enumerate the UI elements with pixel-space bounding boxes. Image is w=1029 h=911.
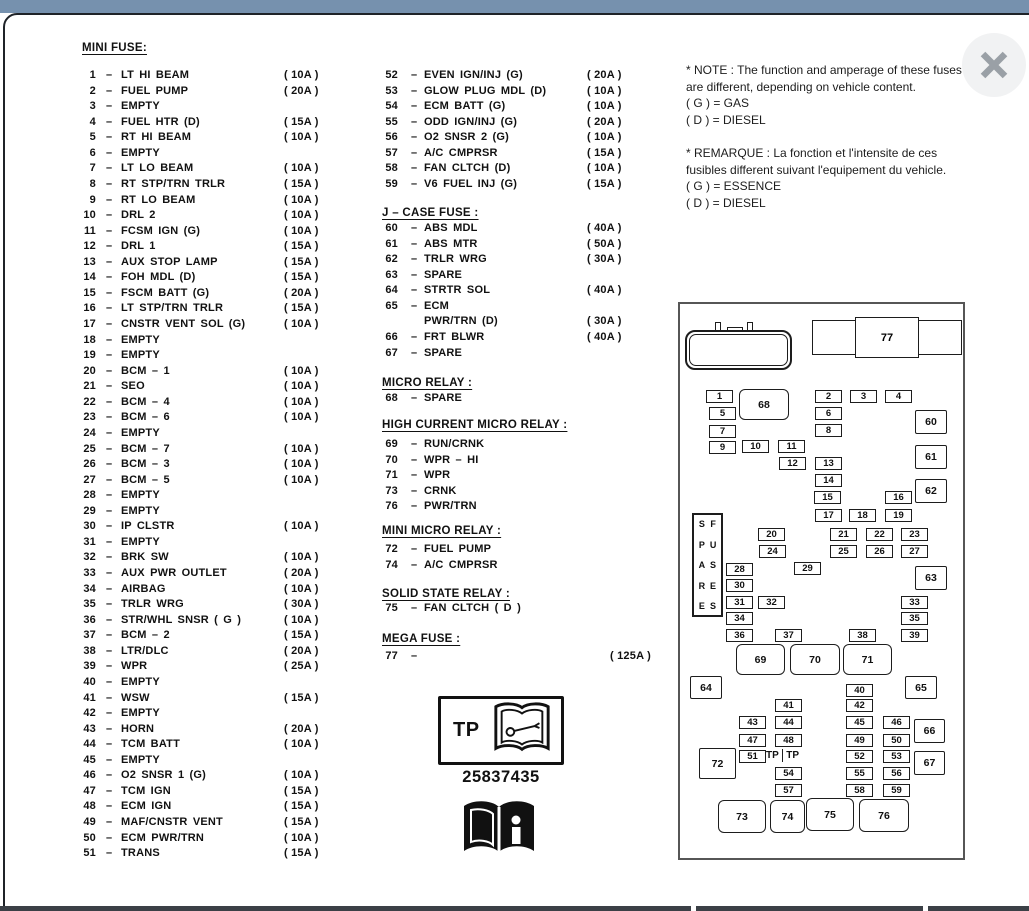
fuse-dash: – — [106, 598, 112, 610]
fuse-label: EMPTY — [121, 505, 160, 517]
fuse-number: 2 — [80, 85, 96, 97]
fuse-dash: – — [106, 85, 112, 97]
fuse-number: 64 — [382, 284, 398, 296]
fuse-row: 28 – EMPTY — [80, 489, 365, 505]
fuse-amp: ( 15A ) — [587, 178, 622, 190]
fuse-amp: ( 125A ) — [610, 650, 651, 662]
fuse-slot-22: 22 — [866, 528, 893, 541]
fuse-dash: – — [106, 583, 112, 595]
fuse-slot-53: 53 — [883, 750, 910, 763]
fuse-slot-48: 48 — [775, 734, 802, 747]
fuse-label: V6 FUEL INJ (G) — [424, 178, 517, 190]
fuse-amp: ( 10A ) — [284, 225, 319, 237]
fuse-label: DRL 1 — [121, 240, 156, 252]
fuse-label: GLOW PLUG MDL (D) — [424, 85, 546, 97]
fuse-slot-44: 44 — [775, 716, 802, 729]
fuse-number: 40 — [80, 676, 96, 688]
fuse-amp: ( 10A ) — [587, 131, 622, 143]
fuse-row: 54 – ECM BATT (G) ( 10A ) — [382, 100, 667, 116]
fuse-slot-45: 45 — [846, 716, 873, 729]
fuse-amp: ( 30A ) — [284, 598, 319, 610]
fuse-amp: ( 15A ) — [587, 147, 622, 159]
fuse-row: 9 – RT LO BEAM ( 10A ) — [80, 194, 365, 210]
fuse-number: 28 — [80, 489, 96, 501]
fuse-number: 55 — [382, 116, 398, 128]
fuse-dash: – — [106, 162, 112, 174]
fuse-dash: – — [411, 100, 417, 112]
fuse-number: 62 — [382, 253, 398, 265]
close-button[interactable] — [962, 33, 1026, 97]
fuse-slot-36: 36 — [726, 629, 753, 642]
fuse-label: RUN/CRNK — [424, 438, 484, 450]
tp-badge: TP — [438, 696, 564, 765]
fuse-number: 32 — [80, 551, 96, 563]
fuse-number: 4 — [80, 116, 96, 128]
fuse-amp: ( 15A ) — [284, 240, 319, 252]
micro-relay-list: 68 – SPARE — [382, 392, 667, 408]
fuse-row: 11 – FCSM IGN (G) ( 10A ) — [80, 225, 365, 241]
fuse-row: 48 – ECM IGN ( 15A ) — [80, 800, 365, 816]
fuse-label: ECM PWR/TRN — [121, 832, 204, 844]
fuse-slot-70: 70 — [790, 644, 840, 675]
mini-fuse-heading: MINI FUSE: — [82, 41, 147, 55]
fuse-dash: – — [411, 543, 417, 555]
fuse-dash: – — [106, 147, 112, 159]
fuse-row: 52 – EVEN IGN/INJ (G) ( 20A ) — [382, 69, 667, 85]
fuse-dash: – — [106, 194, 112, 206]
fuse-amp: ( 15A ) — [284, 178, 319, 190]
fuse-label: AUX PWR OUTLET — [121, 567, 227, 579]
fuse-number: 52 — [382, 69, 398, 81]
fuse-slot-13: 13 — [815, 457, 842, 470]
fuse-number: 74 — [382, 559, 398, 571]
owner-manual-icon — [459, 797, 539, 862]
fuse-number: 14 — [80, 271, 96, 283]
fuse-number: 9 — [80, 194, 96, 206]
fuse-number: 19 — [80, 349, 96, 361]
fuse-label: BCM – 7 — [121, 443, 170, 455]
fuse-dash: – — [106, 240, 112, 252]
fuse-dash: – — [411, 162, 417, 174]
fuse-amp: ( 10A ) — [284, 614, 319, 626]
fuse-dash: – — [106, 318, 112, 330]
fuse-dash: – — [411, 131, 417, 143]
fuse-row: 71 – WPR — [382, 469, 667, 485]
fuse-dash: – — [106, 785, 112, 797]
fuse-label: TRANS — [121, 847, 160, 859]
fuse-number: 3 — [80, 100, 96, 112]
fuse-number: 23 — [80, 411, 96, 423]
fuse-amp: ( 25A ) — [284, 660, 319, 672]
fuse-slot-65: 65 — [905, 676, 937, 699]
fuse-label: FUEL HTR (D) — [121, 116, 200, 128]
fuse-dash: – — [106, 427, 112, 439]
fuse-number: 41 — [80, 692, 96, 704]
fuse-row: 76 – PWR/TRN — [382, 500, 667, 516]
fuse-row: 37 – BCM – 2 ( 15A ) — [80, 629, 365, 645]
fuse-slot-71: 71 — [843, 644, 892, 675]
fuse-slot-41: 41 — [775, 699, 802, 712]
fuse-number: 68 — [382, 392, 398, 404]
fuse-dash: – — [106, 209, 112, 221]
fuse-amp: ( 40A ) — [587, 284, 622, 296]
fuse-amp: ( 30A ) — [587, 315, 622, 327]
fuse-number: 34 — [80, 583, 96, 595]
fuse-dash: – — [106, 614, 112, 626]
fuse-dash: – — [106, 271, 112, 283]
fuse-row: 59 – V6 FUEL INJ (G) ( 15A ) — [382, 178, 667, 194]
fuse-number: 61 — [382, 238, 398, 250]
fuse-number: 66 — [382, 331, 398, 343]
fuse-row: 45 – EMPTY — [80, 754, 365, 770]
fuse-dash: – — [411, 602, 417, 614]
fuse-number: 10 — [80, 209, 96, 221]
fuse-amp: ( 10A ) — [284, 162, 319, 174]
fuse-row: 8 – RT STP/TRN TRLR ( 15A ) — [80, 178, 365, 194]
fuse-number: 54 — [382, 100, 398, 112]
fuse-dash: – — [106, 411, 112, 423]
micro-relay-heading: MICRO RELAY : — [382, 376, 472, 390]
fuse-slot-12: 12 — [779, 457, 806, 470]
fuse-row: 1 – LT HI BEAM ( 10A ) — [80, 69, 365, 85]
fuse-slot-46: 46 — [883, 716, 910, 729]
fuse-number: 45 — [80, 754, 96, 766]
fuse-amp: ( 15A ) — [284, 302, 319, 314]
mini-fuse-list-cont: 52 – EVEN IGN/INJ (G) ( 20A ) 53 – GLOW … — [382, 69, 667, 194]
fuse-dash: – — [411, 650, 417, 662]
fuse-dash: – — [106, 660, 112, 672]
fuse-dash: – — [106, 816, 112, 828]
fuse-row: 67 – SPARE — [382, 347, 667, 363]
fuse-amp: ( 10A ) — [284, 738, 319, 750]
fuse-slot-17: 17 — [815, 509, 842, 522]
high-current-heading: HIGH CURRENT MICRO RELAY : — [382, 418, 567, 432]
fuse-dash: – — [411, 253, 417, 265]
fuse-slot-8: 8 — [815, 424, 842, 437]
fuse-label: BRK SW — [121, 551, 169, 563]
fuse-slot-63: 63 — [915, 566, 947, 590]
solid-state-list: 75 – FAN CLTCH ( D ) — [382, 602, 667, 618]
fuse-dash: – — [106, 116, 112, 128]
fuse-number: 15 — [80, 287, 96, 299]
close-icon — [975, 46, 1013, 84]
fuse-slot-74: 74 — [770, 800, 805, 833]
fuse-row: 39 – WPR ( 25A ) — [80, 660, 365, 676]
fuse-box-diagram: 77 SPARE FUSES TP TP 1579101112234681314… — [678, 302, 965, 860]
fuse-slot-5: 5 — [709, 407, 736, 420]
fuse-label: SEO — [121, 380, 145, 392]
fuse-label: ECM IGN — [121, 800, 171, 812]
fuse-row: 72 – FUEL PUMP — [382, 543, 667, 559]
fuse-dash: – — [106, 567, 112, 579]
fuse-number: 33 — [80, 567, 96, 579]
fuse-row: 64 – STRTR SOL ( 40A ) — [382, 284, 667, 300]
fuse-row: 46 – O2 SNSR 1 (G) ( 10A ) — [80, 769, 365, 785]
fuse-label: LT HI BEAM — [121, 69, 189, 81]
fuse-row: 57 – A/C CMPRSR ( 15A ) — [382, 147, 667, 163]
fuse-number: 20 — [80, 365, 96, 377]
fuse-number: 76 — [382, 500, 398, 512]
fuse-row: 73 – CRNK — [382, 485, 667, 501]
fuse-dash: – — [106, 536, 112, 548]
fuse-row: 56 – O2 SNSR 2 (G) ( 10A ) — [382, 131, 667, 147]
fuse-label: LT STP/TRN TRLR — [121, 302, 223, 314]
fuse-row: 68 – SPARE — [382, 392, 667, 408]
fuse-slot-25: 25 — [830, 545, 857, 558]
fuse-slot-39: 39 — [901, 629, 928, 642]
fuse-label: WPR — [121, 660, 147, 672]
fuse-slot-56: 56 — [883, 767, 910, 780]
fuse-slot-58: 58 — [846, 784, 873, 797]
fuse-amp: ( 10A ) — [284, 380, 319, 392]
fuse-slot-32: 32 — [758, 596, 785, 609]
j-case-heading: J – CASE FUSE : — [382, 206, 479, 220]
fuse-slot-18: 18 — [849, 509, 876, 522]
fuse-amp: ( 10A ) — [284, 396, 319, 408]
fuse-amp: ( 10A ) — [587, 100, 622, 112]
fuse-dash: – — [411, 222, 417, 234]
fuse-label: CNSTR VENT SOL (G) — [121, 318, 245, 330]
fuse-number: 29 — [80, 505, 96, 517]
fuse-label: HORN — [121, 723, 154, 735]
fuse-dash: – — [106, 723, 112, 735]
fuse-label: BCM – 1 — [121, 365, 170, 377]
fuse-slot-1: 1 — [706, 390, 733, 403]
fuse-number: 38 — [80, 645, 96, 657]
fuse-row: 6 – EMPTY — [80, 147, 365, 163]
fuse-number: 18 — [80, 334, 96, 346]
fuse-number: 39 — [80, 660, 96, 672]
fuse-row: 33 – AUX PWR OUTLET ( 20A ) — [80, 567, 365, 583]
fuse-row: 23 – BCM – 6 ( 10A ) — [80, 411, 365, 427]
fuse-amp: ( 10A ) — [284, 520, 319, 532]
fuse-number: 59 — [382, 178, 398, 190]
fuse-slot-16: 16 — [885, 491, 912, 504]
part-number: 25837435 — [436, 768, 566, 787]
fuse-amp: ( 15A ) — [284, 271, 319, 283]
fuse-number: 7 — [80, 162, 96, 174]
fuse-label: LTR/DLC — [121, 645, 169, 657]
fuse-row: 29 – EMPTY — [80, 505, 365, 521]
fuse-row: 22 – BCM – 4 ( 10A ) — [80, 396, 365, 412]
fuse-number: 26 — [80, 458, 96, 470]
fuse-amp: ( 10A ) — [284, 318, 319, 330]
fuse-number: 48 — [80, 800, 96, 812]
fuse-number: 42 — [80, 707, 96, 719]
fuse-row: 25 – BCM – 7 ( 10A ) — [80, 443, 365, 459]
fuse-slot-54: 54 — [775, 767, 802, 780]
fuse-label: FOH MDL (D) — [121, 271, 195, 283]
fuse-dash: – — [106, 847, 112, 859]
fuse-row: 4 – FUEL HTR (D) ( 15A ) — [80, 116, 365, 132]
fuse-number: 5 — [80, 131, 96, 143]
fuse-label: SPARE — [424, 347, 462, 359]
fuse-slot-60: 60 — [915, 410, 947, 434]
fuse-row: 69 – RUN/CRNK — [382, 438, 667, 454]
fuse-label: TCM IGN — [121, 785, 171, 797]
book-wrench-icon — [491, 701, 553, 760]
fuse-row: 77 – ( 125A ) — [382, 650, 667, 666]
fuse-dash: – — [411, 485, 417, 497]
fuse-amp: ( 20A ) — [284, 645, 319, 657]
fuse-number: 71 — [382, 469, 398, 481]
note-line: are different, depending on vehicle cont… — [686, 79, 962, 96]
fuse-slot-7: 7 — [709, 425, 736, 438]
fuse-label: EMPTY — [121, 707, 160, 719]
fuse-label: EMPTY — [121, 489, 160, 501]
fuse-dash: – — [411, 469, 417, 481]
fuse-number: 44 — [80, 738, 96, 750]
fuse-number: 56 — [382, 131, 398, 143]
fuse-dash: – — [411, 454, 417, 466]
fuse-slot-14: 14 — [815, 474, 842, 487]
fuse-label: MAF/CNSTR VENT — [121, 816, 223, 828]
fuse-slot-66: 66 — [914, 719, 945, 743]
fuse-label: FAN CLTCH ( D ) — [424, 602, 521, 614]
fuse-row: 51 – TRANS ( 15A ) — [80, 847, 365, 863]
fuse-row: 24 – EMPTY — [80, 427, 365, 443]
fuse-number: 60 — [382, 222, 398, 234]
fuse-label: BCM – 6 — [121, 411, 170, 423]
fuse-dash: – — [106, 396, 112, 408]
fuse-number: 69 — [382, 438, 398, 450]
fuse-dash: – — [106, 225, 112, 237]
fuse-number: 53 — [382, 85, 398, 97]
fuse-label: ODD IGN/INJ (G) — [424, 116, 517, 128]
fuse-row: 26 – BCM – 3 ( 10A ) — [80, 458, 365, 474]
fuse-number: 46 — [80, 769, 96, 781]
fuse-dash: – — [411, 559, 417, 571]
fuse-amp: ( 20A ) — [284, 567, 319, 579]
fuse-number: 27 — [80, 474, 96, 486]
mini-fuse-list: 1 – LT HI BEAM ( 10A ) 2 – FUEL PUMP ( 2… — [80, 69, 365, 863]
fuse-label: LT LO BEAM — [121, 162, 193, 174]
fuse-dash: – — [106, 832, 112, 844]
fuse-slot-76: 76 — [859, 799, 909, 832]
fuse-row: 61 – ABS MTR ( 50A ) — [382, 238, 667, 254]
fuse-slot-2: 2 — [815, 390, 842, 403]
fuse-label: O2 SNSR 2 (G) — [424, 131, 509, 143]
fuse-number: 43 — [80, 723, 96, 735]
fuse-amp: ( 10A ) — [284, 583, 319, 595]
fuse-row: 3 – EMPTY — [80, 100, 365, 116]
fuse-row: 41 – WSW ( 15A ) — [80, 692, 365, 708]
fuse-number: 49 — [80, 816, 96, 828]
fuse-dash: – — [106, 489, 112, 501]
fuse-label: ECM — [424, 300, 449, 312]
fuse-label: SPARE — [424, 269, 462, 281]
tp-badge-label: TP — [453, 719, 480, 742]
fuse-slot-35: 35 — [901, 612, 928, 625]
fuse-label: FAN CLTCH (D) — [424, 162, 510, 174]
fuse-amp: ( 10A ) — [587, 162, 622, 174]
fuse-row: 50 – ECM PWR/TRN ( 10A ) — [80, 832, 365, 848]
fuse-label: TRLR WRG — [121, 598, 184, 610]
fuse-label: FUEL PUMP — [424, 543, 491, 555]
fuse-amp: ( 10A ) — [284, 474, 319, 486]
fuse-dash: – — [411, 347, 417, 359]
fuse-row: 31 – EMPTY — [80, 536, 365, 552]
fuse-row: 40 – EMPTY — [80, 676, 365, 692]
fuse-dash: – — [411, 438, 417, 450]
fuse-slot-69: 69 — [736, 644, 785, 675]
fuse-label: WSW — [121, 692, 150, 704]
tp-label-right: TP — [786, 750, 799, 761]
fuse-dash: – — [106, 349, 112, 361]
fuse-amp: ( 10A ) — [284, 769, 319, 781]
fuse-number: 47 — [80, 785, 96, 797]
fuse-number: 50 — [80, 832, 96, 844]
fuse-row: 18 – EMPTY — [80, 334, 365, 350]
fuse-slot-64: 64 — [690, 676, 722, 699]
fuse-slot-15: 15 — [814, 491, 841, 504]
fuse-dash: – — [411, 331, 417, 343]
fuse-number: 31 — [80, 536, 96, 548]
fuse-row: 42 – EMPTY — [80, 707, 365, 723]
fuse-slot-75: 75 — [806, 798, 854, 831]
fuse-number: 75 — [382, 602, 398, 614]
fuse-dash: – — [106, 256, 112, 268]
fuse-dash: – — [411, 284, 417, 296]
fuse-label: EMPTY — [121, 147, 160, 159]
fuse-dash: – — [411, 392, 417, 404]
fuse-row: 60 – ABS MDL ( 40A ) — [382, 222, 667, 238]
fuse-row: 17 – CNSTR VENT SOL (G) ( 10A ) — [80, 318, 365, 334]
fuse-label: EMPTY — [121, 349, 160, 361]
fuse-amp: ( 15A ) — [284, 116, 319, 128]
fuse-slot-52: 52 — [846, 750, 873, 763]
fuse-dash: – — [106, 800, 112, 812]
fuse-row: 2 – FUEL PUMP ( 20A ) — [80, 85, 365, 101]
fuse-label: DRL 2 — [121, 209, 156, 221]
fuse-slot-27: 27 — [901, 545, 928, 558]
fuse-document-viewer: MINI FUSE: 1 – LT HI BEAM ( 10A ) 2 – FU… — [0, 0, 1029, 911]
fuse-label: BCM – 2 — [121, 629, 170, 641]
fuse-number: 25 — [80, 443, 96, 455]
fuse-dash: – — [106, 178, 112, 190]
fuse-label: EVEN IGN/INJ (G) — [424, 69, 523, 81]
fuse-slot-23: 23 — [901, 528, 928, 541]
fuse-slot-50: 50 — [883, 734, 910, 747]
fuse-amp: ( 15A ) — [284, 692, 319, 704]
fuse-dash: – — [106, 769, 112, 781]
fuse-slot-33: 33 — [901, 596, 928, 609]
fuse-slot-24: 24 — [759, 545, 786, 558]
fuse-label: EMPTY — [121, 754, 160, 766]
note-english: * NOTE : The function and amperage of th… — [686, 62, 962, 128]
fuse-dash: – — [106, 100, 112, 112]
fuse-slot-34: 34 — [726, 612, 753, 625]
j-case-list: 60 – ABS MDL ( 40A ) 61 – ABS MTR ( 50A … — [382, 222, 667, 362]
fuse-label: IP CLSTR — [121, 520, 175, 532]
fuse-slot-11: 11 — [778, 440, 805, 453]
fuse-amp: ( 10A ) — [284, 365, 319, 377]
fuse-number: 22 — [80, 396, 96, 408]
fuse-dash: – — [106, 505, 112, 517]
fuse-slot-73: 73 — [718, 800, 766, 833]
fuse-row: 75 – FAN CLTCH ( D ) — [382, 602, 667, 618]
fuse-number: 67 — [382, 347, 398, 359]
fuse-dash: – — [106, 458, 112, 470]
fuse-number: 8 — [80, 178, 96, 190]
fuse-number: 51 — [80, 847, 96, 859]
high-current-list: 69 – RUN/CRNK 70 – WPR – HI 71 – WPR 73 … — [382, 438, 667, 516]
fuse-row: 62 – TRLR WRG ( 30A ) — [382, 253, 667, 269]
fuse-dash: – — [106, 131, 112, 143]
fuse-row: 63 – SPARE — [382, 269, 667, 285]
fuse-label: AUX STOP LAMP — [121, 256, 218, 268]
fuse-row: 15 – FSCM BATT (G) ( 20A ) — [80, 287, 365, 303]
